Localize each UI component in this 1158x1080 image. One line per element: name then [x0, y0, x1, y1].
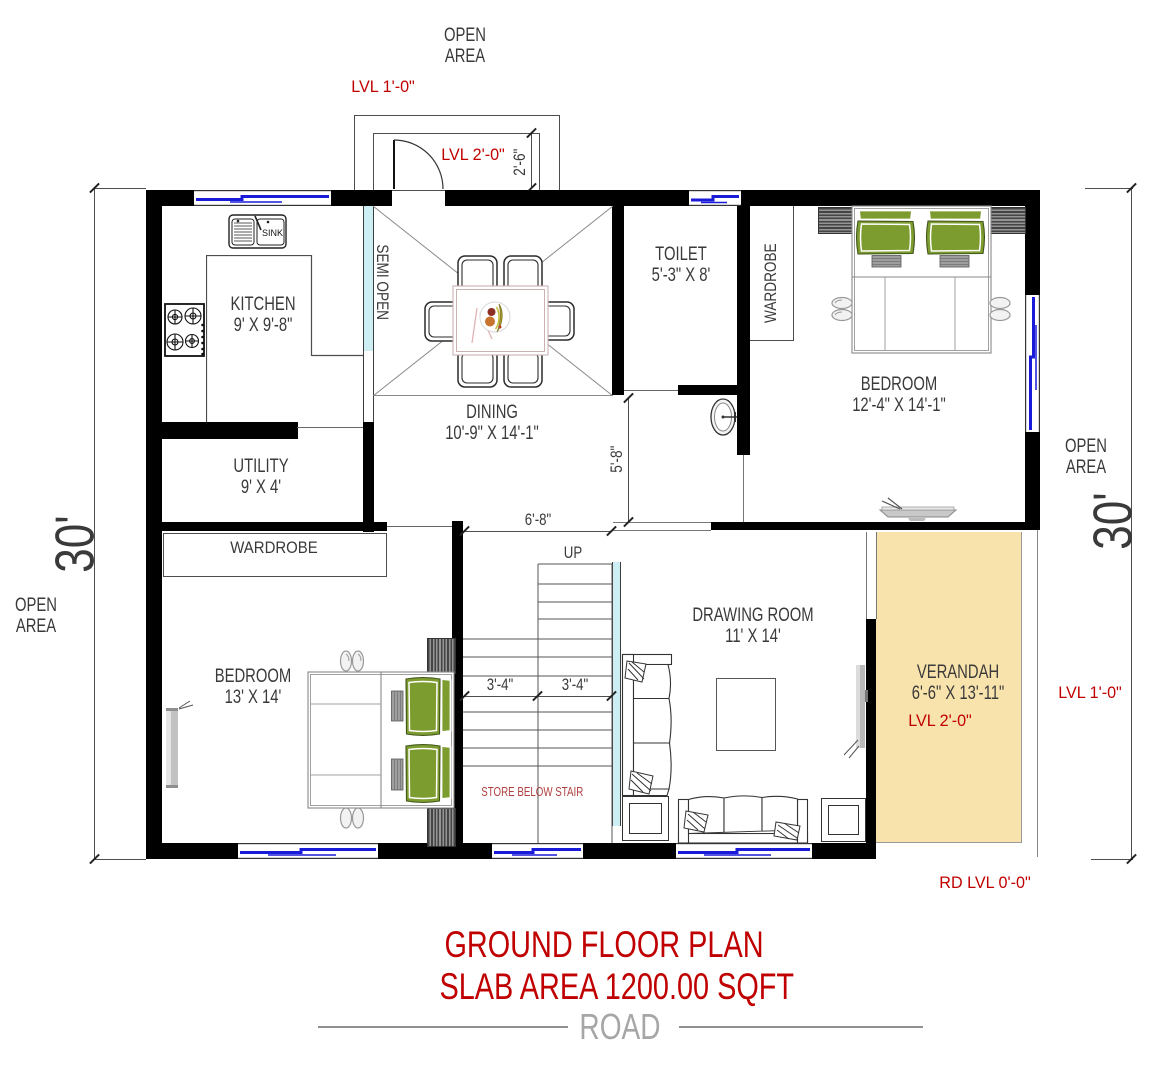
svg-text:SINK: SINK: [262, 228, 283, 238]
